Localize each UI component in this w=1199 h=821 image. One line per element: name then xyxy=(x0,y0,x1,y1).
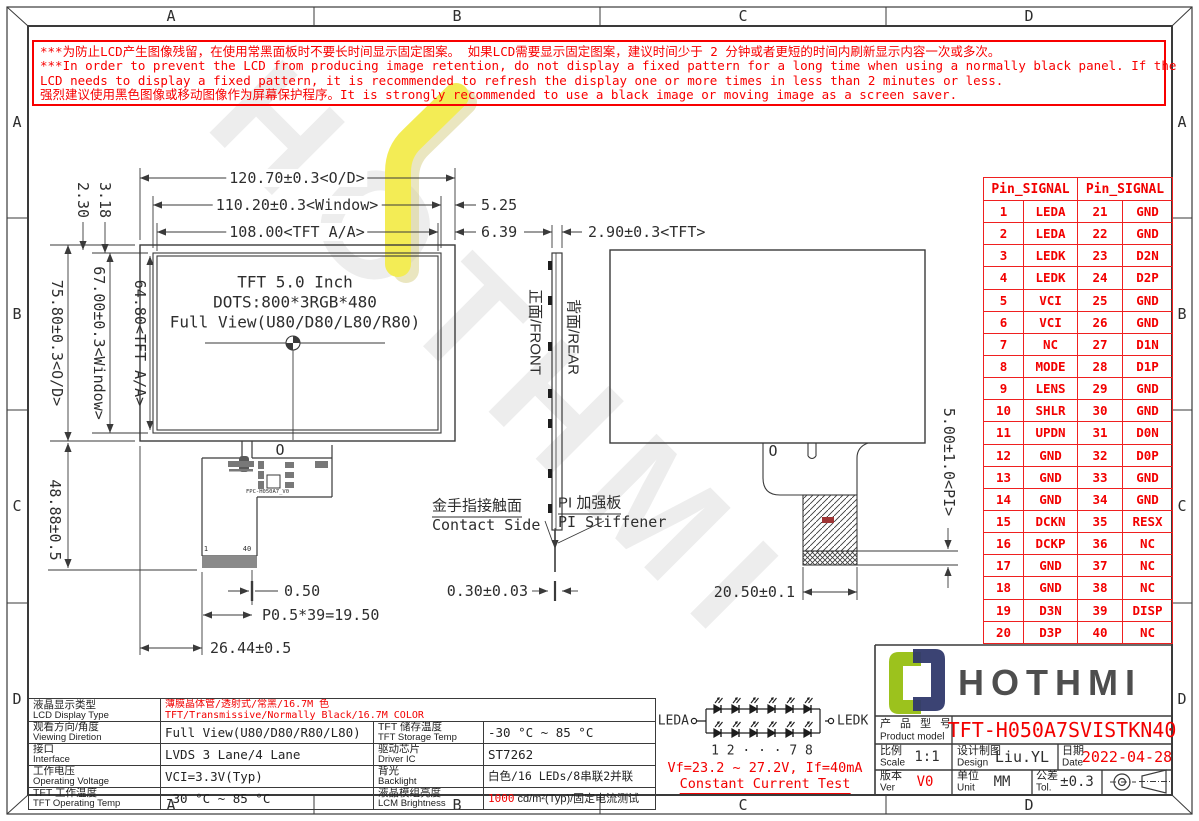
version-value: V0 xyxy=(917,774,934,790)
dim-tft-thickness: 2.90±0.3<TFT> xyxy=(588,223,705,241)
scale-value: 1:1 xyxy=(914,749,939,765)
fpc-outline xyxy=(202,441,332,568)
spec-label-en: Operating Voltage xyxy=(33,777,160,787)
fpc-components xyxy=(228,461,328,489)
pin-signal: GND xyxy=(1123,311,1173,333)
date-label-en: Date xyxy=(1062,758,1083,769)
pin-number: 27 xyxy=(1078,333,1123,355)
unit-label-zh: 单位 xyxy=(957,770,979,782)
brand-logo-icon xyxy=(889,649,945,714)
dim-fpc-offset: 26.44±0.5 xyxy=(210,639,291,657)
spec-table: 液晶显示类型 LCD Display Type 薄膜晶体管/透射式/常黑/16.… xyxy=(28,698,656,810)
pin-number: 3 xyxy=(984,245,1024,267)
pin-signal: DCKP xyxy=(1024,533,1078,555)
rear-side-label: 背面/REAR xyxy=(564,299,585,375)
pin-signal: NC xyxy=(1024,333,1078,355)
panel-dots-text: DOTS:800*3RGB*480 xyxy=(213,293,377,312)
pin-signal: GND xyxy=(1123,201,1173,223)
contact-side-label-en: Contact Side xyxy=(432,516,540,534)
contact-side-label-zh: 金手指接触面 xyxy=(432,495,522,518)
pin-signal: D0N xyxy=(1123,422,1173,444)
pin-number: 25 xyxy=(1078,289,1123,311)
dim-contact-thickness: 0.30±0.03 xyxy=(447,582,528,600)
warning-line-3: LCD needs to display a fixed pattern, it… xyxy=(40,74,1158,87)
spec-label-en: TFT Operating Temp xyxy=(33,799,160,809)
pin-row: 18GND38NC xyxy=(984,577,1173,599)
spec-value-black-part: cd/m²(Typ)/固定电流测试 xyxy=(515,793,640,805)
pin-signal: UPDN xyxy=(1024,422,1078,444)
spec-label-zh: 液晶显示类型 xyxy=(33,700,160,711)
pin-signal: NC xyxy=(1123,621,1173,643)
spec-value: Full View(U80/D80/R80/L80) xyxy=(161,722,374,744)
dim-pi-height: 5.00±1.0<PI> xyxy=(940,408,958,516)
grid-row-label: B xyxy=(12,305,21,323)
spec-label: TFT 工作温度 TFT Operating Temp xyxy=(29,787,161,809)
warning-line-4: 强烈建议使用黑色图像或移动图像作为屏幕保护程序。It is strongly r… xyxy=(40,88,1158,101)
pin-signal: D3P xyxy=(1024,621,1078,643)
fpc-pin1-label: 1 xyxy=(204,545,208,553)
product-model-label-en: Product model xyxy=(880,732,944,743)
pin-row: 10SHLR30GND xyxy=(984,400,1173,422)
dim-od-height: 75.80±0.3<O/D> xyxy=(48,280,66,406)
pin-number: 36 xyxy=(1078,533,1123,555)
grid-row-label: B xyxy=(1177,305,1186,323)
fpc-pin40-label: 40 xyxy=(243,545,251,553)
led-circuit xyxy=(691,698,833,737)
pin-row: 20D3P40NC xyxy=(984,621,1173,643)
pin-row: 12GND32D0P xyxy=(984,444,1173,466)
pin-number: 18 xyxy=(984,577,1024,599)
grid-row-label: C xyxy=(12,497,21,515)
pin-table-header-left: Pin_SIGNAL xyxy=(984,178,1078,201)
dim-top-offset-a: 2.30 xyxy=(74,182,92,218)
pin-table-body: 1LEDA21GND2LEDA22GND3LEDK23D2N4LEDK24D2P… xyxy=(984,201,1173,644)
spec-value-red-part: 1000 xyxy=(488,792,515,805)
pi-stiffener-label-zh: PI 加强板 xyxy=(558,492,621,515)
spec-label: 驱动芯片 Driver IC xyxy=(374,743,484,765)
spec-value: VCI=3.3V(Typ) xyxy=(161,765,374,787)
pin-number: 33 xyxy=(1078,466,1123,488)
spec-value: 1000 cd/m²(Typ)/固定电流测试 xyxy=(484,787,656,809)
pin-signal: D3N xyxy=(1024,599,1078,621)
tolerance-label-en: Tol. xyxy=(1036,783,1052,794)
front-zero-mark: O xyxy=(275,441,284,459)
pin-signal: GND xyxy=(1123,289,1173,311)
dim-top-offset-b: 3.18 xyxy=(96,182,114,218)
grid-row-label: A xyxy=(12,113,21,131)
pin-row: 4LEDK24D2P xyxy=(984,267,1173,289)
dim-window-height: 67.00±0.3<Window> xyxy=(90,266,108,420)
pin-number: 10 xyxy=(984,400,1024,422)
scale-label-en: Scale xyxy=(880,758,905,769)
retention-warning-box: ***为防止LCD产生图像残留，在使用常黑面板时不要长时间显示固定图案。 如果L… xyxy=(32,40,1166,106)
pin-signal: GND xyxy=(1024,444,1078,466)
pin-number: 17 xyxy=(984,555,1024,577)
tolerance-value: ±0.3 xyxy=(1060,774,1094,790)
spec-label-en: TFT Storage Temp xyxy=(378,733,483,743)
dim-pin-pitch: P0.5*39=19.50 xyxy=(262,606,379,624)
dim-od-width: 120.70±0.3<O/D> xyxy=(226,169,367,187)
spec-label: 接口 Interface xyxy=(29,743,161,765)
date-label-zh: 日期 xyxy=(1062,745,1084,757)
pin-number: 23 xyxy=(1078,245,1123,267)
dim-window-width: 110.20±0.3<Window> xyxy=(213,196,382,214)
pin-signal: GND xyxy=(1123,488,1173,510)
date-value: 2022-04-28 xyxy=(1082,748,1172,766)
pin-row: 13GND33GND xyxy=(984,466,1173,488)
pin-signal: D1N xyxy=(1123,333,1173,355)
projection-symbol xyxy=(1110,770,1170,793)
pin-row: 2LEDA22GND xyxy=(984,223,1173,245)
pin-signal: LEDK xyxy=(1024,267,1078,289)
version-label-en: Ver xyxy=(880,783,895,794)
pin-signal: NC xyxy=(1123,533,1173,555)
grid-col-label: C xyxy=(738,796,747,814)
designer-value: Liu.YL xyxy=(995,748,1049,766)
pin-row: 9LENS29GND xyxy=(984,378,1173,400)
pin-signal: GND xyxy=(1123,223,1173,245)
spec-value: ST7262 xyxy=(484,743,656,765)
dim-aa-height: 64.80<TFT A/A> xyxy=(131,280,149,406)
rear-zero-mark: O xyxy=(768,442,777,460)
left-dimensions xyxy=(48,222,197,570)
grid-row-label: C xyxy=(1177,497,1186,515)
pin-number: 40 xyxy=(1078,621,1123,643)
spec-value: -30 °C ~ 85 °C xyxy=(161,787,374,809)
grid-row-label: A xyxy=(1177,113,1186,131)
front-side-label: 正面/FRONT xyxy=(526,289,547,375)
pin-signal: D2N xyxy=(1123,245,1173,267)
pin-number: 9 xyxy=(984,378,1024,400)
spec-label: 液晶模组亮度 LCM Brightness xyxy=(374,787,484,809)
grid-col-label: B xyxy=(452,7,461,25)
brand-wordmark: HOTHMI xyxy=(958,662,1142,704)
pin-number: 14 xyxy=(984,488,1024,510)
spec-label-en: Driver IC xyxy=(378,755,483,765)
pin-number: 24 xyxy=(1078,267,1123,289)
dim-fpc-length: 48.88±0.5 xyxy=(46,479,64,560)
pin-row: 16DCKP36NC xyxy=(984,533,1173,555)
pin-row: 14GND34GND xyxy=(984,488,1173,510)
pin-signal: SHLR xyxy=(1024,400,1078,422)
version-label-zh: 版本 xyxy=(880,770,902,782)
dim-aa-width: 108.00<TFT A/A> xyxy=(226,223,367,241)
pin-row: 1LEDA21GND xyxy=(984,201,1173,223)
pin-number: 19 xyxy=(984,599,1024,621)
pin-signal: GND xyxy=(1123,378,1173,400)
spec-label-en: Backlight xyxy=(378,777,483,787)
pin-row: 3LEDK23D2N xyxy=(984,245,1173,267)
center-mark xyxy=(205,336,385,440)
pin-number: 20 xyxy=(984,621,1024,643)
design-label-en: Design xyxy=(957,758,988,769)
spec-value-zh: 薄膜晶体管/透射式/常黑/16.7M 色 xyxy=(165,699,655,710)
pin-number: 2 xyxy=(984,223,1024,245)
led-cathode-label: LEDK xyxy=(837,714,868,729)
pin-number: 4 xyxy=(984,267,1024,289)
spec-label: TFT 储存温度 TFT Storage Temp xyxy=(374,722,484,744)
panel-size-text: TFT 5.0 Inch xyxy=(237,273,353,292)
spec-label-en: Viewing Diretion xyxy=(33,733,160,743)
dim-pin-width: 0.50 xyxy=(284,582,320,600)
pin-number: 31 xyxy=(1078,422,1123,444)
spec-value: LVDS 3 Lane/4 Lane xyxy=(161,743,374,765)
pin-row: 17GND37NC xyxy=(984,555,1173,577)
pin-signal: NC xyxy=(1123,555,1173,577)
pin-signal: RESX xyxy=(1123,510,1173,532)
grid-col-label: A xyxy=(166,7,175,25)
datasheet-page: HOTHMI xyxy=(0,0,1199,821)
spec-label-en: Interface xyxy=(33,755,160,765)
pin-number: 30 xyxy=(1078,400,1123,422)
pin-signal: LEDA xyxy=(1024,201,1078,223)
pin-signal: GND xyxy=(1024,577,1078,599)
pin-number: 21 xyxy=(1078,201,1123,223)
pin-row: 5VCI25GND xyxy=(984,289,1173,311)
pin-row: 6VCI26GND xyxy=(984,311,1173,333)
pin-number: 26 xyxy=(1078,311,1123,333)
unit-label-en: Unit xyxy=(957,783,975,794)
spec-value: 薄膜晶体管/透射式/常黑/16.7M 色 TFT/Transmissive/No… xyxy=(161,699,656,722)
spec-label: 背光 Backlight xyxy=(374,765,484,787)
pin-row: 11UPDN31D0N xyxy=(984,422,1173,444)
pin-row: 19D3N39DISP xyxy=(984,599,1173,621)
pin-number: 28 xyxy=(1078,355,1123,377)
pin-number: 32 xyxy=(1078,444,1123,466)
led-anode-label: LEDA xyxy=(658,714,689,729)
pin-signal: LEDA xyxy=(1024,223,1078,245)
dim-aa-right-offset: 6.39 xyxy=(481,223,517,241)
pin-signal-table: Pin_SIGNAL Pin_SIGNAL 1LEDA21GND2LEDA22G… xyxy=(983,177,1173,644)
pin-number: 37 xyxy=(1078,555,1123,577)
grid-col-label: C xyxy=(738,7,747,25)
spec-label-en: LCM Brightness xyxy=(378,799,483,809)
dim-stiffener-width: 20.50±0.1 xyxy=(714,583,795,601)
spec-label: 工作电压 Operating Voltage xyxy=(29,765,161,787)
pin-signal: D1P xyxy=(1123,355,1173,377)
warning-line-2: ***In order to prevent the LCD from prod… xyxy=(40,59,1158,72)
dim-window-right-offset: 5.25 xyxy=(481,196,517,214)
scale-label-zh: 比例 xyxy=(880,745,902,757)
pin-number: 16 xyxy=(984,533,1024,555)
pin-signal: GND xyxy=(1024,555,1078,577)
pin-signal: GND xyxy=(1024,466,1078,488)
pin-table-header-right: Pin_SIGNAL xyxy=(1078,178,1173,201)
pin-number: 11 xyxy=(984,422,1024,444)
pin-number: 6 xyxy=(984,311,1024,333)
pin-signal: DCKN xyxy=(1024,510,1078,532)
spec-label: 液晶显示类型 LCD Display Type xyxy=(29,699,161,722)
led-test-note: Constant Current Test xyxy=(680,776,851,794)
pi-stiffener-label-en: PI Stiffener xyxy=(558,513,666,531)
pin-signal: GND xyxy=(1024,488,1078,510)
pin-signal: VCI xyxy=(1024,289,1078,311)
pin-number: 35 xyxy=(1078,510,1123,532)
pin-row: 7NC27D1N xyxy=(984,333,1173,355)
pin-signal: D0P xyxy=(1123,444,1173,466)
pin-number: 38 xyxy=(1078,577,1123,599)
pin-number: 12 xyxy=(984,444,1024,466)
spec-value: -30 °C ~ 85 °C xyxy=(484,722,656,744)
spec-value: 白色/16 LEDs/8串联2并联 xyxy=(484,765,656,787)
grid-col-label: D xyxy=(1024,796,1033,814)
spec-value-en: TFT/Transmissive/Normally Black/16.7M CO… xyxy=(165,710,655,721)
bottom-dimensions xyxy=(140,446,278,655)
pin-signal: GND xyxy=(1123,400,1173,422)
pin-signal: NC xyxy=(1123,577,1173,599)
pin-signal: VCI xyxy=(1024,311,1078,333)
grid-col-label: D xyxy=(1024,7,1033,25)
pin-signal: GND xyxy=(1123,466,1173,488)
pin-signal: DISP xyxy=(1123,599,1173,621)
grid-row-label: D xyxy=(12,690,21,708)
pin-number: 22 xyxy=(1078,223,1123,245)
led-vf-spec: Vf=23.2 ~ 27.2V, If=40mA xyxy=(667,760,862,776)
pin-number: 8 xyxy=(984,355,1024,377)
pin-signal: MODE xyxy=(1024,355,1078,377)
spec-label-en: LCD Display Type xyxy=(33,711,160,721)
spec-label: 观看方向/角度 Viewing Diretion xyxy=(29,722,161,744)
pin-signal: LENS xyxy=(1024,378,1078,400)
tolerance-label-zh: 公差 xyxy=(1036,770,1058,782)
led-number-row: 1 2 · · · 7 8 xyxy=(711,744,813,759)
pin-number: 29 xyxy=(1078,378,1123,400)
pin-row: 15DCKN35RESX xyxy=(984,510,1173,532)
pin-number: 5 xyxy=(984,289,1024,311)
pin-number: 34 xyxy=(1078,488,1123,510)
product-model-value: TFT-H050A7SVISTKN40 xyxy=(948,718,1177,742)
grid-row-label: D xyxy=(1177,690,1186,708)
pin-signal: D2P xyxy=(1123,267,1173,289)
pin-signal: LEDK xyxy=(1024,245,1078,267)
fpc-part-number: FPC-H050A7_V0 xyxy=(246,489,289,495)
pin-row: 8MODE28D1P xyxy=(984,355,1173,377)
pin-number: 15 xyxy=(984,510,1024,532)
pin-number: 13 xyxy=(984,466,1024,488)
pin-number: 1 xyxy=(984,201,1024,223)
pin-number: 7 xyxy=(984,333,1024,355)
pin-number: 39 xyxy=(1078,599,1123,621)
warning-line-1: ***为防止LCD产生图像残留，在使用常黑面板时不要长时间显示固定图案。 如果L… xyxy=(40,45,1158,58)
product-model-label-zh: 产 品 型 号 xyxy=(880,718,954,730)
unit-value: MM xyxy=(994,774,1011,790)
panel-view-text: Full View(U80/D80/L80/R80) xyxy=(170,313,420,332)
